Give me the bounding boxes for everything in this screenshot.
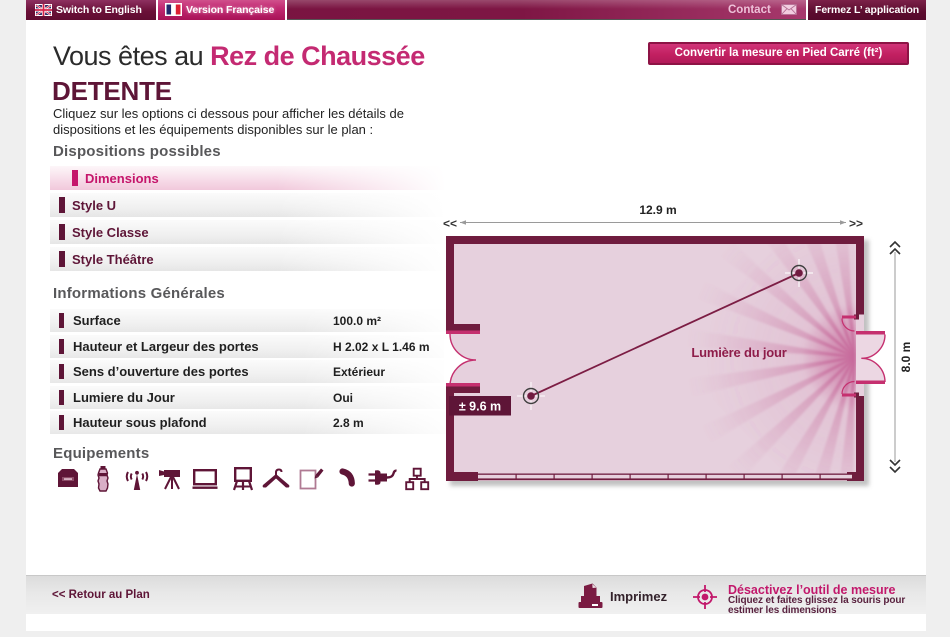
svg-text:<<: << — [443, 217, 457, 231]
svg-text:8.0 m: 8.0 m — [899, 342, 913, 373]
svg-text:12.9 m: 12.9 m — [639, 203, 676, 217]
svg-text:± 9.6 m: ± 9.6 m — [459, 400, 501, 414]
svg-text:>>: >> — [849, 217, 863, 231]
svg-text:Lumière du jour: Lumière du jour — [691, 345, 786, 360]
